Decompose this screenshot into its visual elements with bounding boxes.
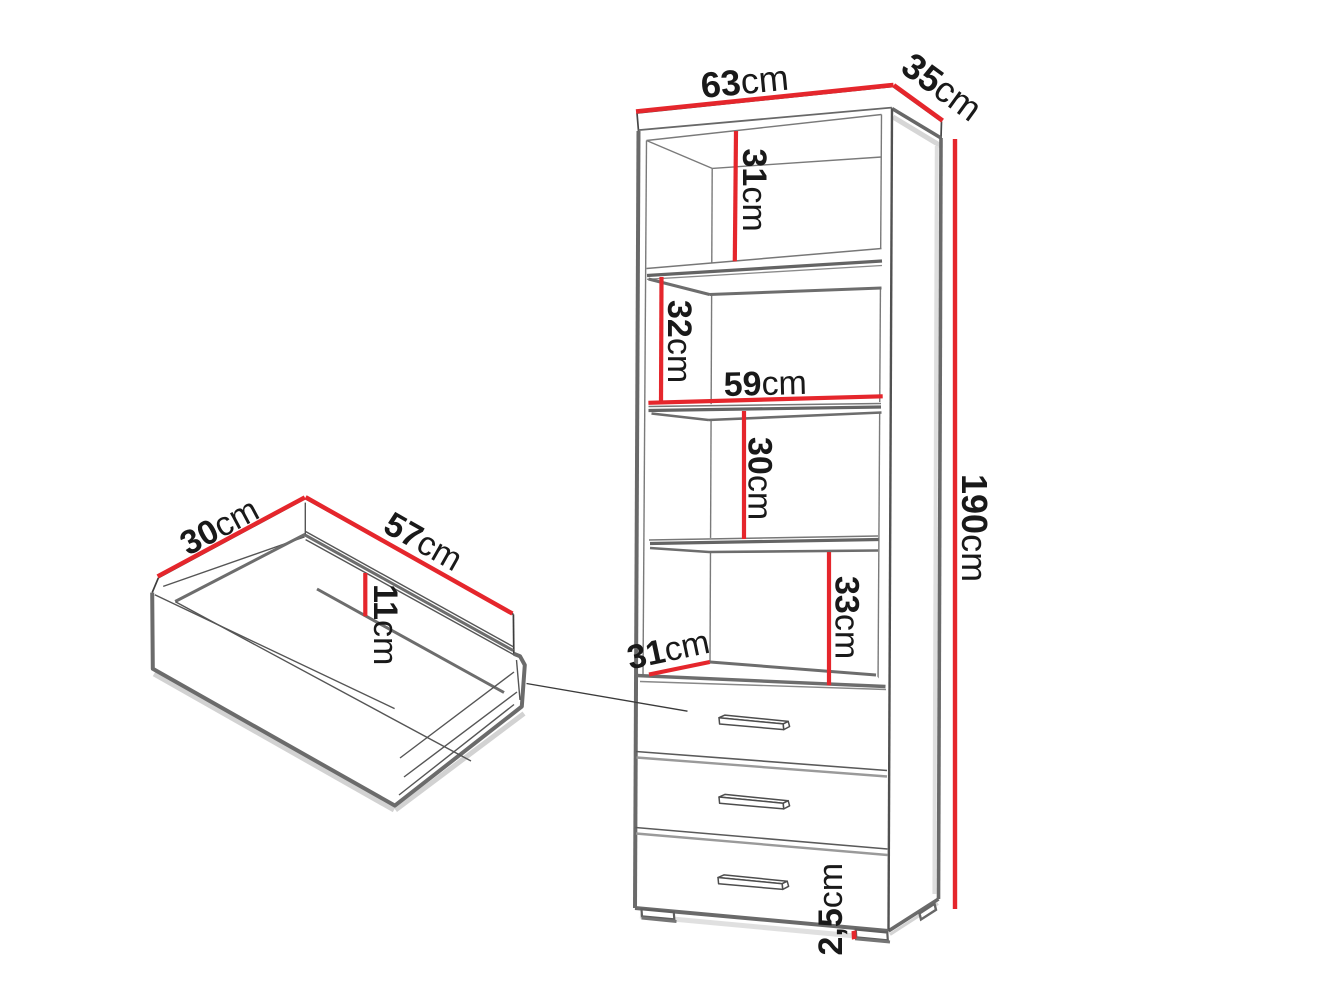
- svg-text:63cm: 63cm: [699, 57, 791, 106]
- svg-text:11cm: 11cm: [366, 584, 404, 665]
- svg-text:31cm: 31cm: [735, 149, 773, 232]
- svg-text:30cm: 30cm: [741, 437, 779, 520]
- svg-text:59cm: 59cm: [723, 364, 807, 404]
- svg-text:190cm: 190cm: [954, 474, 995, 582]
- svg-text:32cm: 32cm: [660, 300, 698, 383]
- svg-text:2,5cm: 2,5cm: [812, 863, 850, 956]
- svg-text:33cm: 33cm: [828, 576, 866, 659]
